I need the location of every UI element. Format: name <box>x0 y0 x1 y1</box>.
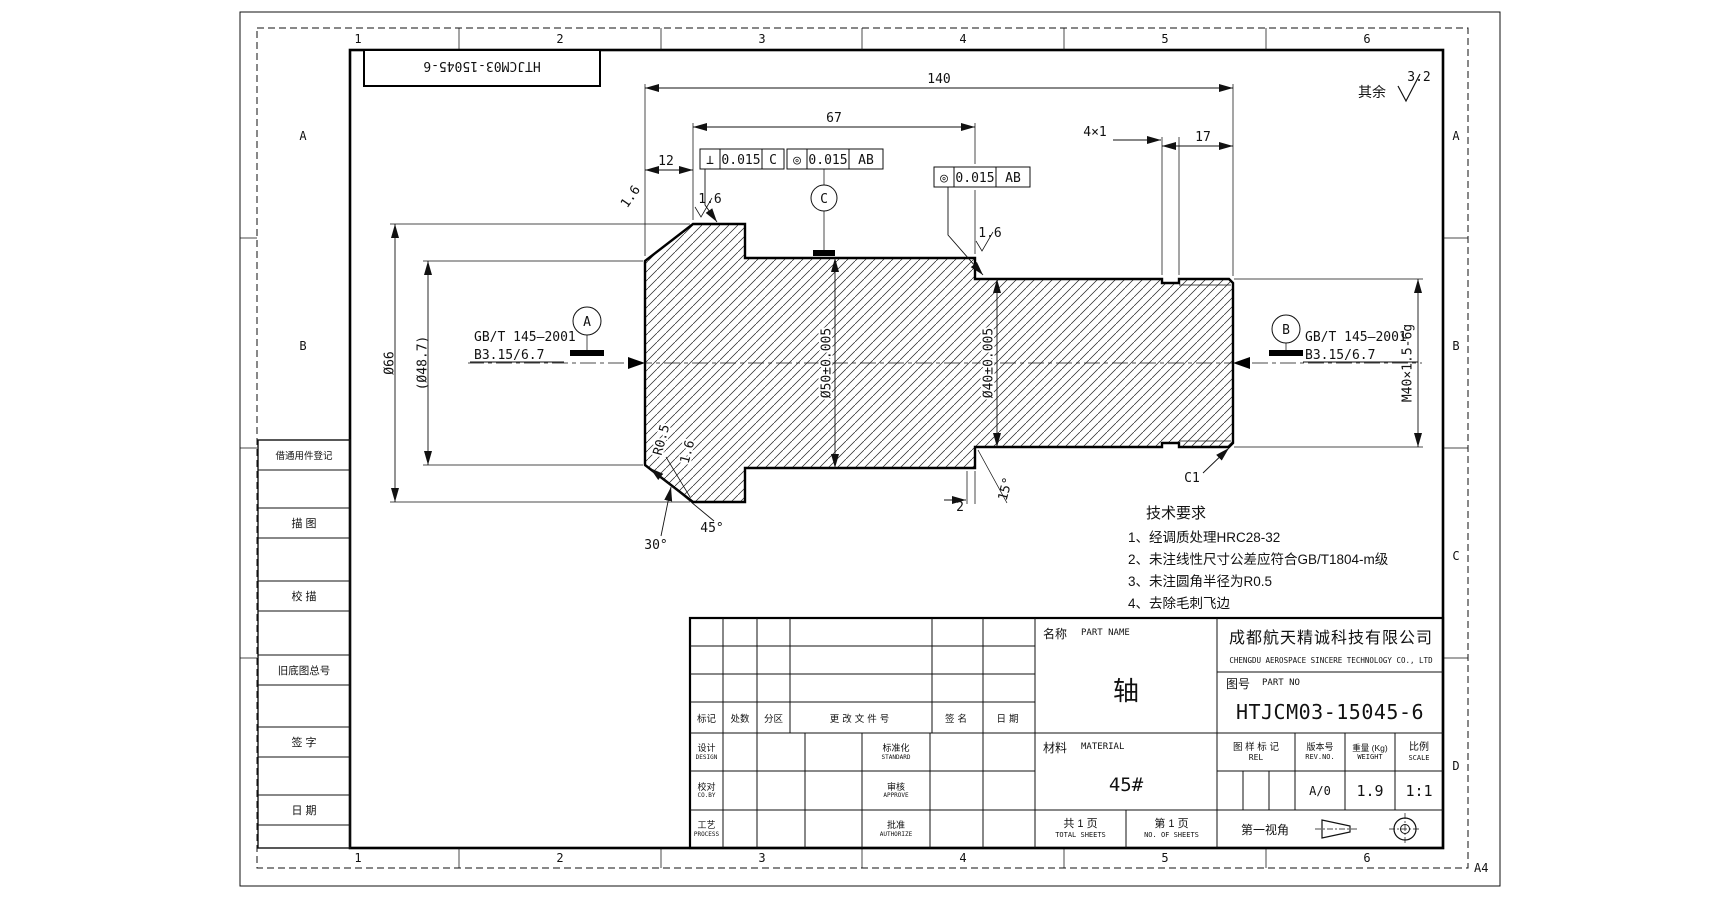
scale-label: 比例 <box>1409 742 1429 754</box>
zone-number-top-3: 3 <box>758 32 765 46</box>
dim-dia66: Ø66 <box>383 351 398 374</box>
fcf1-tolerance: 0.015 <box>721 153 760 168</box>
fcf3-symbol: ◎ <box>940 171 948 186</box>
role-approve-en: APPROVE <box>883 792 908 799</box>
roughness-1-6-dia40: 1.6 <box>978 226 1001 241</box>
role-process-en: PROCESS <box>694 831 719 838</box>
sidebar-item-trace-check: 校 描 <box>258 581 350 611</box>
zone-number-top-4: 4 <box>959 32 966 46</box>
zone-letter-right-d: D <box>1452 759 1459 773</box>
role-standard-cn: 标准化 <box>882 743 909 754</box>
center-hole-spec-right: B3.15/6.7 <box>1305 348 1375 363</box>
role-process-cn: 工艺 <box>697 820 715 831</box>
part-name-label-en: PART NAME <box>1081 628 1130 638</box>
projection-circle-icon <box>1389 813 1421 845</box>
fcf-concentricity-1: ◎ 0.015 AB <box>787 149 883 169</box>
center-hole-callout-left: GB/T 145—2001 B3.15/6.7 <box>470 330 576 363</box>
sidebar-item-old-drawing-no: 旧底图总号 <box>258 655 350 685</box>
rev-mark-label: 图 样 标 记 <box>1233 742 1279 753</box>
dim-15deg: 15° <box>996 476 1017 503</box>
technical-requirements: 技术要求 1、经调质处理HRC28-32 2、未注线性尺寸公差应符合GB/T18… <box>1128 502 1478 615</box>
roughness-1-6-flange: 1.6 <box>698 192 721 207</box>
sidebar-item-signature: 签 字 <box>258 727 350 757</box>
role-standard-en: STANDARD <box>882 754 911 761</box>
rev-header-doc-no: 更改文件号 <box>790 702 932 733</box>
fcf1-symbol: ⊥ <box>706 153 714 168</box>
roughness-1-6-taper: 1.6 <box>618 183 644 211</box>
role-approve-cn: 审核 <box>887 782 905 793</box>
center-hole-std-left: GB/T 145—2001 <box>474 330 576 345</box>
role-check-cn: 校对 <box>697 782 715 793</box>
zone-number-top-5: 5 <box>1161 32 1168 46</box>
zone-number-bottom-1: 1 <box>354 851 361 865</box>
mirrored-partno-text: HTJCM03-15045-6 <box>423 58 540 73</box>
projection-label: 第一视角 <box>1222 810 1308 848</box>
roughness-rest-label: 其余 <box>1358 84 1386 100</box>
rev-header-signature: 签名 <box>932 702 983 733</box>
zone-number-bottom-6: 6 <box>1363 851 1370 865</box>
tech-req-item-2: 2、未注线性尺寸公差应符合GB/T1804-m级 <box>1128 549 1478 571</box>
datum-a-letter: A <box>583 315 591 330</box>
rev-mark-label-en: REL <box>1249 753 1263 763</box>
sheet-no-label: 第 1 页 <box>1154 818 1188 831</box>
zone-number-top-1: 1 <box>354 32 361 46</box>
center-hole-spec-left: B3.15/6.7 <box>474 348 544 363</box>
fcf1-datum: C <box>769 153 777 168</box>
weight-value: 1.9 <box>1345 771 1395 810</box>
engineering-drawing-sheet: 1 2 3 4 5 6 1 2 3 4 5 6 A B A B C D A4 H… <box>0 0 1725 901</box>
rev-header-date: 日期 <box>983 702 1035 733</box>
datum-c-letter: C <box>820 192 828 207</box>
sheet-no-label-en: NO. OF SHEETS <box>1144 831 1199 839</box>
zone-number-bottom-3: 3 <box>758 851 765 865</box>
zone-letter-left-b: B <box>299 339 306 353</box>
dim-45deg: 45° <box>700 521 723 536</box>
datum-b-letter: B <box>1282 323 1290 338</box>
mirrored-partno-box: HTJCM03-15045-6 <box>364 50 600 86</box>
total-sheets-label: 共 1 页 <box>1063 818 1097 831</box>
tech-req-title: 技术要求 <box>1128 502 1478 523</box>
role-design-en: DESIGN <box>696 754 718 761</box>
rev-header-zone: 分区 <box>757 702 790 733</box>
shaft-section-view <box>468 224 1422 502</box>
dim-17: 17 <box>1195 130 1211 145</box>
part-no-label: 图号 <box>1226 675 1250 692</box>
zone-number-top-2: 2 <box>556 32 563 46</box>
total-sheets-label-en: TOTAL SHEETS <box>1055 831 1106 839</box>
fcf2-datum: AB <box>858 153 874 168</box>
part-name-label: 名称 <box>1043 625 1067 642</box>
fcf3-datum: AB <box>1005 171 1021 186</box>
tech-req-item-3: 3、未注圆角半径为R0.5 <box>1128 571 1478 593</box>
weight-label-en: WEIGHT <box>1357 753 1382 761</box>
scale-label-en: SCALE <box>1408 754 1429 762</box>
version-label-en: REV.NO. <box>1305 753 1335 761</box>
zone-letter-right-b: B <box>1452 339 1459 353</box>
dim-dia50: Ø50±0.005 <box>820 328 835 398</box>
role-design-cn: 设计 <box>697 743 715 754</box>
zone-number-bottom-4: 4 <box>959 851 966 865</box>
role-authorize-cn: 批准 <box>887 820 905 831</box>
sidebar-item-date: 日 期 <box>258 795 350 825</box>
datum-b: B <box>1269 315 1303 356</box>
sidebar-item-borrow-register: 借通用件登记 <box>258 440 350 470</box>
dim-140: 140 <box>927 72 950 87</box>
dim-dia48-7: (Ø48.7) <box>416 336 431 391</box>
dim-dia40: Ø40±0.005 <box>982 328 997 398</box>
fcf2-symbol: ◎ <box>793 153 801 168</box>
center-hole-std-right: GB/T 145—2001 <box>1305 330 1407 345</box>
dim-67: 67 <box>826 111 842 126</box>
fcf3-tolerance: 0.015 <box>955 171 994 186</box>
sidebar-grid <box>258 440 350 848</box>
left-center-arrow-icon <box>628 357 645 369</box>
dim-2: 2 <box>956 500 964 515</box>
part-name-value: 轴 <box>1035 648 1217 731</box>
material-label: 材料 <box>1043 739 1067 756</box>
part-no-value: HTJCM03-15045-6 <box>1217 691 1443 733</box>
material-label-en: MATERIAL <box>1081 742 1124 752</box>
tech-req-item-4: 4、去除毛刺飞边 <box>1128 593 1478 615</box>
dim-12: 12 <box>658 154 674 169</box>
projection-cone-icon <box>1315 820 1357 838</box>
version-value: A/0 <box>1295 771 1345 810</box>
zone-number-bottom-5: 5 <box>1161 851 1168 865</box>
role-authorize-en: AUTHORIZE <box>880 831 913 838</box>
role-check-en: CO.BY <box>697 792 715 799</box>
scale-value: 1:1 <box>1395 771 1443 810</box>
dim-30deg: 30° <box>644 538 667 553</box>
zone-number-top-6: 6 <box>1363 32 1370 46</box>
right-center-arrow-icon <box>1233 357 1250 369</box>
material-value: 45# <box>1035 759 1217 810</box>
dim-groove-4x1: 4×1 <box>1083 125 1106 140</box>
roughness-rest-value: 3.2 <box>1407 70 1430 85</box>
sheet-format-label: A4 <box>1474 861 1488 875</box>
dim-c1: C1 <box>1184 471 1200 486</box>
zone-letter-right-a: A <box>1452 129 1460 143</box>
rev-header-count: 处数 <box>723 702 757 733</box>
datum-c: C <box>811 169 837 256</box>
tech-req-item-1: 1、经调质处理HRC28-32 <box>1128 527 1478 549</box>
company-name-cn: 成都航天精诚科技有限公司 <box>1219 619 1443 652</box>
part-no-label-en: PART NO <box>1262 678 1300 688</box>
fcf-perpendicularity: ⊥ 0.015 C <box>700 149 784 222</box>
zone-letter-left-a: A <box>299 129 307 143</box>
sidebar-item-tracing: 描 图 <box>258 508 350 538</box>
weight-label: 重量 (Kg) <box>1352 743 1387 753</box>
fcf2-tolerance: 0.015 <box>808 153 847 168</box>
zone-number-bottom-2: 2 <box>556 851 563 865</box>
rev-header-mark: 标记 <box>690 702 723 733</box>
company-name-en: CHENGDU AEROSPACE SINCERE TECHNOLOGY CO.… <box>1219 650 1443 671</box>
version-label: 版本号 <box>1306 742 1333 753</box>
